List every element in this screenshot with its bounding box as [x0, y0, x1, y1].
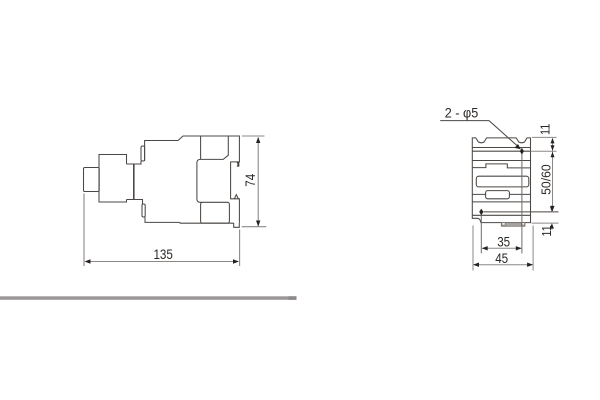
svg-text:35: 35 — [497, 235, 510, 250]
svg-text:135: 135 — [153, 247, 173, 262]
svg-text:50/60: 50/60 — [540, 164, 554, 195]
svg-text:2 - φ5: 2 - φ5 — [445, 106, 479, 121]
svg-text:74: 74 — [243, 173, 258, 186]
svg-text:11: 11 — [539, 124, 553, 136]
svg-text:45: 45 — [495, 251, 508, 266]
svg-text:11: 11 — [540, 225, 554, 237]
